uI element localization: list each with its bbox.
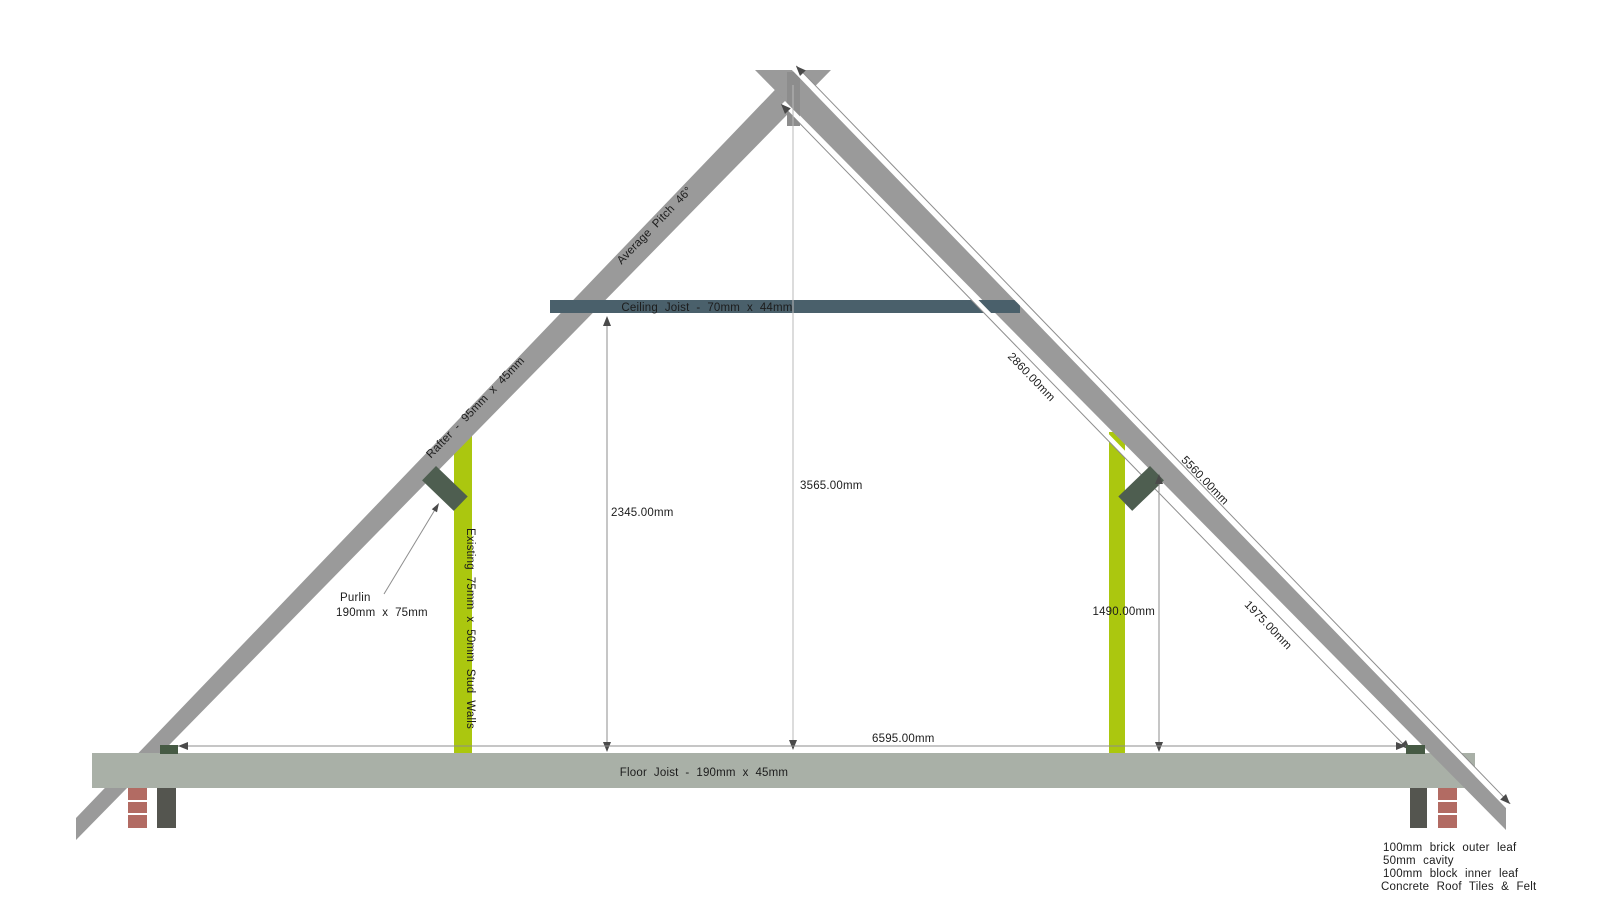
ridge-height-dim: 3565.00mm (800, 480, 863, 492)
purlin-size-label: 190mm x 75mm (336, 607, 428, 619)
purlin-callout-line (384, 508, 436, 594)
dimension-arrow (1155, 742, 1163, 752)
ceiling-height-dim: 2345.00mm (611, 507, 674, 519)
block-pier-left (157, 788, 176, 828)
rafter-dim-line-inner (781, 105, 1408, 750)
purlin-height-dim: 1490.00mm (1092, 606, 1155, 618)
rafter-dim-band-outer (792, 66, 1510, 808)
dimension-arrow (603, 742, 611, 752)
rafter-right (755, 70, 1506, 830)
roof-section-canvas: Average Pitch 46° Rafter - 95mm x 45mm 2… (0, 0, 1600, 910)
wall-plate-left (160, 745, 178, 754)
wall-spec-line-3: 100mm block inner leaf (1383, 868, 1519, 880)
rafter-size-label: Rafter - 95mm x 45mm (424, 355, 527, 461)
dimension-arrow (178, 742, 188, 750)
wall-spec-block: 100mm brick outer leaf 50mm cavity 100mm… (1381, 842, 1537, 893)
rafter-dim-band-inner (781, 101, 1412, 750)
internal-span-dim: 6595.00mm (872, 733, 935, 745)
brick-pier-right (1438, 788, 1457, 828)
wall-spec-line-2: 50mm cavity (1383, 855, 1454, 867)
ceiling-joist-label: Ceiling Joist - 70mm x 44mm (621, 302, 792, 314)
stud-wall-label: Existing 75mm x 50mm Stud Walls (464, 528, 476, 729)
wall-spec-line-4: Concrete Roof Tiles & Felt (1381, 881, 1537, 893)
wall-spec-line-1: 100mm brick outer leaf (1383, 842, 1517, 854)
purlin-name-label: Purlin (340, 592, 371, 604)
wall-plate-right (1406, 745, 1425, 754)
dimension-arrow (789, 740, 797, 750)
rafter-dim-line-outer (796, 66, 1510, 804)
block-pier-right (1410, 788, 1427, 828)
average-pitch-label: Average Pitch 46° (615, 185, 695, 267)
dimension-arrow (432, 503, 439, 512)
brick-pier-left (128, 788, 147, 828)
stud-wall-right (1109, 432, 1125, 757)
roof-section-drawing: Average Pitch 46° Rafter - 95mm x 45mm 2… (0, 0, 1600, 910)
floor-joist-label: Floor Joist - 190mm x 45mm (620, 767, 788, 779)
dimension-arrow (603, 316, 611, 326)
rafter-left (76, 70, 831, 840)
